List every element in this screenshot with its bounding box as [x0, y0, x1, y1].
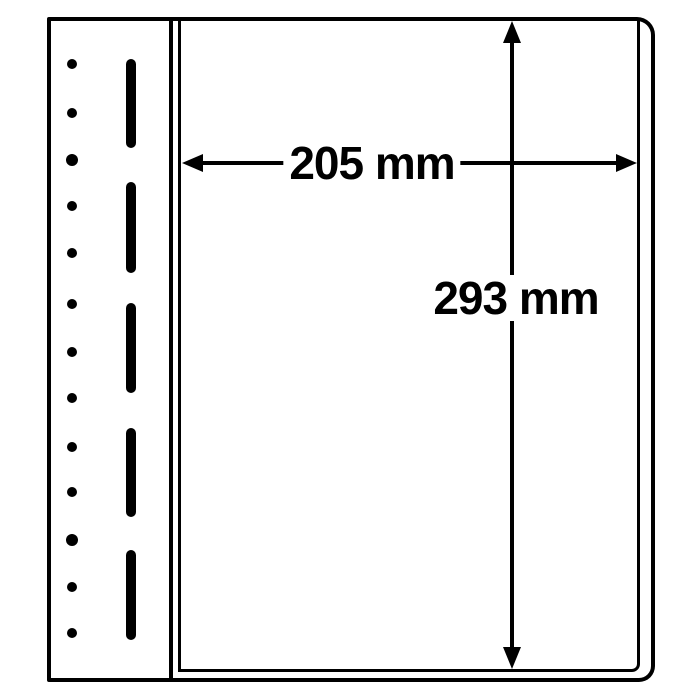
punch-hole: [66, 534, 78, 546]
height-dimension-label: 293 mm: [427, 275, 604, 321]
punch-hole: [67, 442, 77, 452]
binding-slot: [126, 428, 136, 517]
width-arrow-left-head-icon: [182, 154, 203, 172]
punch-hole: [67, 299, 77, 309]
binding-slot: [126, 182, 136, 273]
binding-slot: [126, 550, 136, 640]
punch-hole: [67, 347, 77, 357]
punch-hole: [67, 628, 77, 638]
punch-hole: [67, 393, 77, 403]
width-dimension-label: 205 mm: [283, 140, 460, 186]
punch-hole: [67, 59, 77, 69]
album-sheet-dimension-diagram: 205 mm 293 mm: [0, 0, 700, 700]
punch-hole: [66, 154, 78, 166]
height-arrow-bottom-head-icon: [503, 647, 521, 669]
height-arrow-line: [510, 36, 514, 662]
punch-hole: [67, 248, 77, 258]
height-arrow-top-head-icon: [503, 21, 521, 43]
punch-hole: [67, 108, 77, 118]
punch-hole: [67, 582, 77, 592]
pocket-outline: [178, 18, 640, 672]
binding-slot: [126, 59, 136, 148]
width-arrow-right-head-icon: [616, 154, 637, 172]
binding-strip-divider-line: [169, 21, 173, 678]
binding-slot: [126, 303, 136, 393]
punch-hole: [67, 201, 77, 211]
punch-hole: [67, 487, 77, 497]
